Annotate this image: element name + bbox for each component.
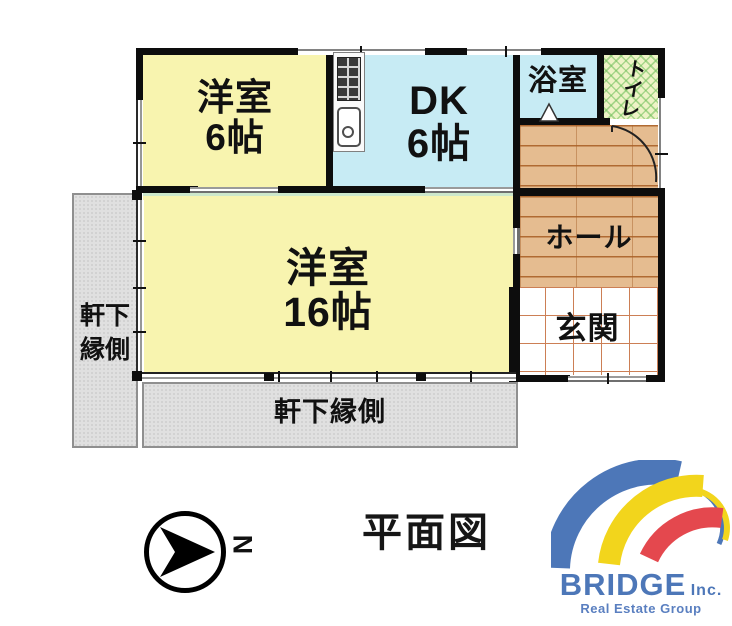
wall-segment	[136, 186, 198, 193]
room-size: 16帖	[283, 289, 373, 335]
logo-suffix: Inc.	[691, 582, 723, 599]
sliding-door	[513, 228, 520, 254]
window-tick	[278, 371, 280, 382]
engawa-line1: 軒下	[80, 302, 130, 330]
sliding-door	[190, 187, 278, 193]
room-size: 6帖	[407, 122, 471, 166]
compass: N	[140, 505, 280, 605]
bridge-arc-icon	[551, 460, 731, 572]
floorplan-page: 洋室 6帖 DK 6帖 浴室 トイレ ホール 玄関 洋室 16帖 軒下 縁側 軒…	[0, 0, 732, 626]
room-name: 浴室	[528, 65, 588, 97]
room-name: ホール	[545, 222, 632, 253]
wall-segment	[278, 186, 425, 193]
room-name: 玄関	[556, 311, 620, 346]
logo-tagline: Real Estate Group	[550, 601, 732, 616]
window	[658, 98, 665, 188]
window-tick	[376, 371, 378, 382]
label-entrance: 玄関	[517, 312, 658, 345]
label-toilet: トイレ	[599, 53, 662, 123]
north-label: N	[226, 535, 257, 555]
logo-name: BRIDGE	[560, 567, 687, 602]
logo-wordmark: BRIDGE Inc.	[550, 569, 732, 600]
room-name: DK	[409, 79, 469, 123]
wall-segment	[646, 375, 665, 382]
window	[136, 372, 516, 381]
room-name: 洋室	[286, 245, 370, 291]
window-tick	[655, 153, 668, 155]
wall-segment	[326, 48, 333, 193]
engawa-label: 軒下縁側	[274, 397, 386, 427]
label-engawa-bottom: 軒下縁側	[142, 398, 518, 427]
room-name: トイレ	[615, 57, 646, 120]
label-western6: 洋室 6帖	[143, 78, 327, 158]
label-hall: ホール	[520, 223, 658, 253]
pillar-post	[132, 371, 142, 381]
engawa-line2: 縁側	[80, 336, 130, 364]
window-tick	[470, 371, 472, 382]
window-tick	[607, 373, 609, 384]
window	[467, 48, 541, 55]
window-tick	[505, 46, 507, 57]
label-dk: DK 6帖	[365, 80, 513, 166]
gas-stove-icon	[337, 57, 361, 101]
north-arrow-icon	[149, 516, 221, 588]
wall-segment	[513, 188, 665, 196]
pillar-post	[416, 373, 426, 381]
wall-segment	[513, 375, 570, 382]
sliding-door	[425, 187, 513, 193]
room-name: 洋室	[197, 77, 273, 118]
wall-segment	[513, 118, 610, 125]
company-logo: BRIDGE Inc. Real Estate Group	[550, 460, 732, 626]
label-engawa-left: 軒下 縁側	[74, 300, 136, 368]
pillar-post	[132, 190, 142, 200]
pillar-post	[264, 373, 274, 381]
room-size: 6帖	[205, 117, 265, 158]
page-title: 平面図	[362, 500, 491, 558]
label-western16: 洋室 16帖	[143, 246, 513, 335]
window-tick	[330, 371, 332, 382]
sink-bowl-icon	[342, 126, 354, 138]
window-tick	[133, 240, 146, 242]
label-bathroom: 浴室	[516, 66, 600, 97]
corridor-floor	[520, 125, 658, 189]
